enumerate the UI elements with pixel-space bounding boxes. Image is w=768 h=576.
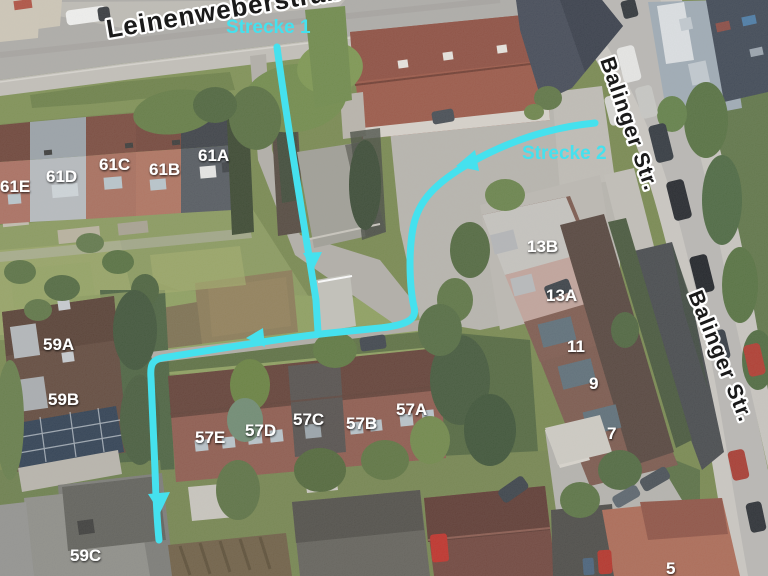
svg-text:9: 9: [589, 374, 598, 393]
svg-text:57E: 57E: [195, 428, 225, 447]
svg-text:61B: 61B: [149, 160, 180, 179]
svg-text:61D: 61D: [46, 167, 77, 186]
svg-text:11: 11: [567, 337, 585, 356]
svg-text:Strecke 1: Strecke 1: [226, 17, 311, 38]
svg-text:57D: 57D: [245, 421, 276, 440]
svg-text:5: 5: [666, 559, 675, 576]
svg-text:61A: 61A: [198, 146, 229, 165]
svg-text:59A: 59A: [43, 335, 74, 354]
svg-text:7: 7: [607, 424, 616, 443]
svg-text:61C: 61C: [99, 155, 130, 174]
svg-text:13B: 13B: [527, 237, 558, 256]
svg-text:57C: 57C: [293, 410, 324, 429]
svg-text:59B: 59B: [48, 390, 79, 409]
svg-text:57B: 57B: [346, 414, 377, 433]
svg-text:61E: 61E: [0, 177, 30, 196]
svg-text:57A: 57A: [396, 400, 427, 419]
svg-text:59C: 59C: [70, 546, 101, 565]
svg-text:Strecke 2: Strecke 2: [522, 143, 607, 164]
svg-text:13A: 13A: [546, 286, 577, 305]
